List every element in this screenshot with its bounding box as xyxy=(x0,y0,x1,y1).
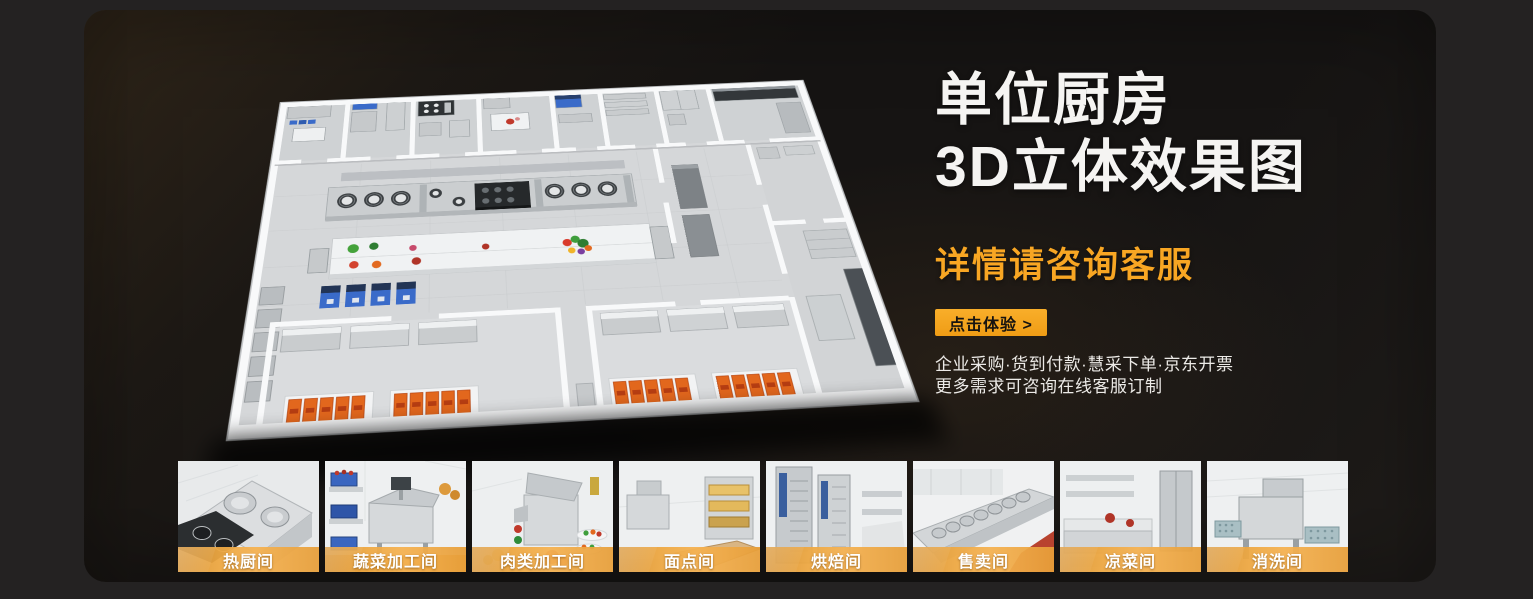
kitchen-3d-floorplan xyxy=(219,77,927,451)
subtitle: 详情请咨询客服 xyxy=(935,243,1194,289)
thumb-sales-room[interactable]: 售卖间 xyxy=(913,461,1054,572)
thumb-label-band: 面点间 xyxy=(619,547,760,572)
cta-button[interactable]: 点击体验 > xyxy=(935,309,1047,336)
title-line-1: 单位厨房 xyxy=(935,66,1171,134)
thumb-label-band: 售卖间 xyxy=(913,547,1054,572)
floorplan-graphic xyxy=(219,77,927,451)
title-line-2: 3D立体效果图 xyxy=(935,133,1307,201)
thumb-meat-processing[interactable]: 肉类加工间 xyxy=(472,461,613,572)
thumb-baking-room[interactable]: 烘焙间 xyxy=(766,461,907,572)
thumb-pastry-room[interactable]: 面点间 xyxy=(619,461,760,572)
thumb-vegetable-processing[interactable]: 蔬菜加工间 xyxy=(325,461,466,572)
promo-banner-stage: 单位厨房 3D立体效果图 详情请咨询客服 点击体验 > 企业采购·货到付款·慧采… xyxy=(0,0,1533,599)
thumb-cold-dish-room[interactable]: 凉菜间 xyxy=(1060,461,1201,572)
thumb-label-band: 烘焙间 xyxy=(766,547,907,572)
hero-banner-panel: 单位厨房 3D立体效果图 详情请咨询客服 点击体验 > 企业采购·货到付款·慧采… xyxy=(84,10,1436,582)
info-line-2: 更多需求可咨询在线客服订制 xyxy=(935,377,1163,396)
purchase-info: 企业采购·货到付款·慧采下单·京东开票 更多需求可咨询在线客服订制 xyxy=(935,354,1233,398)
thumb-hot-kitchen[interactable]: 热厨间 xyxy=(178,461,319,572)
room-thumbnail-gallery: 热厨间 蔬菜加工间 xyxy=(178,461,1348,572)
thumb-washing-room[interactable]: 消洗间 xyxy=(1207,461,1348,572)
thumb-label-band: 蔬菜加工间 xyxy=(325,547,466,572)
info-line-1: 企业采购·货到付款·慧采下单·京东开票 xyxy=(935,355,1233,374)
thumb-label-band: 热厨间 xyxy=(178,547,319,572)
thumb-label-band: 消洗间 xyxy=(1207,547,1348,572)
thumb-label-band: 肉类加工间 xyxy=(472,547,613,572)
thumb-label-band: 凉菜间 xyxy=(1060,547,1201,572)
